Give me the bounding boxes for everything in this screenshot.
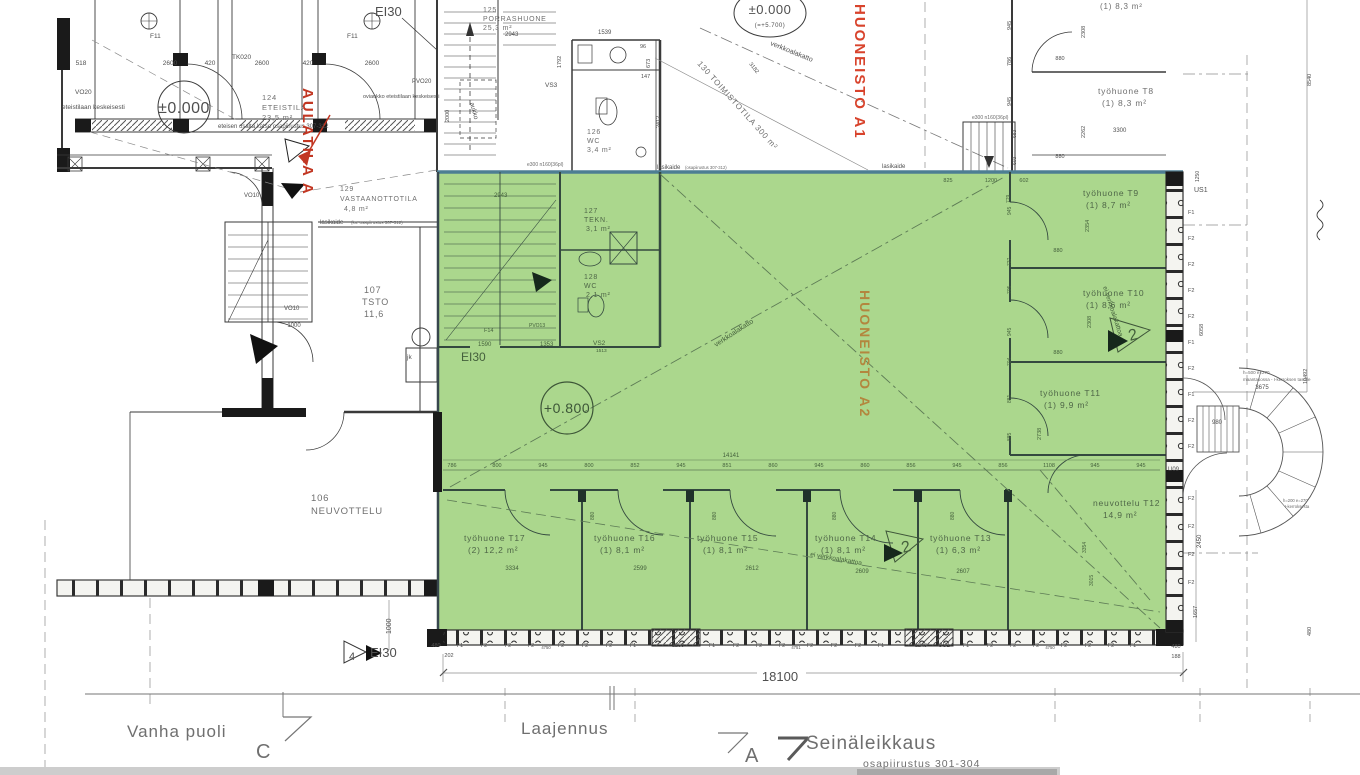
room-t8-name: työhuone T8 <box>1098 86 1154 96</box>
dim-945-a: 945 <box>1007 21 1013 30</box>
win-b-24: F1 <box>1130 643 1136 649</box>
dim-880-a: 880 <box>1055 56 1064 62</box>
dim-2354: 2354 <box>1085 220 1091 232</box>
dim-row-14: 1108 <box>1043 463 1055 469</box>
win-b-6: F2 <box>582 643 588 649</box>
label-u09: U09 <box>1168 467 1180 473</box>
room-t11-area: (1) 9,9 m² <box>1044 400 1089 410</box>
room-124-area: 23,5 m² <box>262 113 293 122</box>
label-f11-left: F11 <box>150 33 161 40</box>
room-126-area: 3,4 m² <box>587 147 612 154</box>
dim-518: 518 <box>76 60 87 67</box>
dim-2000: 2000 <box>445 110 451 122</box>
dim-2943-a: 2943 <box>505 32 519 38</box>
dim-727: 727 <box>1007 257 1013 266</box>
dim-786-a: 786 <box>1007 57 1013 66</box>
dim-2412: 2412 <box>656 116 662 128</box>
level-a1: ±0.000 <box>749 2 792 17</box>
dim-945-d: 945 <box>1007 327 1013 336</box>
win-b-7: F2 <box>606 643 612 649</box>
dim-683: 683 <box>1012 129 1018 138</box>
room-t11-name: työhuone T11 <box>1040 388 1101 398</box>
label-huoneisto-a2: HUONEISTO A2 <box>857 290 873 418</box>
win-b-8: F1 <box>630 643 636 649</box>
room-106-name: NEUVOTTELU <box>311 506 383 517</box>
floor-plan-drawing: EI30F11F11TK020518260042026004202600VO20… <box>0 0 1360 775</box>
win-r-8: F1 <box>1188 392 1194 398</box>
room-127-area: 3,1 m² <box>586 226 611 233</box>
label-pvo20: PVO20 <box>412 79 432 85</box>
dim-2308-b: 2308 <box>1087 316 1093 328</box>
room-t16-name: työhuone T16 <box>594 533 655 543</box>
win-b-14: F2 <box>831 643 837 649</box>
room-t10-name: työhuone T10 <box>1083 288 1144 298</box>
dim-2943-b: 2943 <box>494 193 508 199</box>
room-126-name: WC <box>587 138 600 145</box>
win-b-480l: 480 <box>431 643 440 649</box>
label-aulatila-a: AULATILA A <box>299 88 316 196</box>
room-t9-area: (1) 8,7 m² <box>1086 200 1131 210</box>
dim-603: 603 <box>1012 156 1018 165</box>
dim-1657: 1657 <box>1193 606 1199 618</box>
win-b-4751: 4751 <box>791 645 801 650</box>
room-125-area: 25,3 m² <box>483 25 512 32</box>
dim-2308-a: 2308 <box>1081 26 1087 38</box>
win-r-4: F2 <box>1188 288 1194 294</box>
room-106-num: 106 <box>311 493 329 504</box>
dim-2612: 2612 <box>745 566 759 572</box>
room-125-name: PORRASHUONE <box>483 16 547 23</box>
floor-plan-page: EI30F11F11TK020518260042026004202600VO20… <box>0 0 1360 775</box>
label-ei30-green: EI30 <box>461 350 486 364</box>
win-r-11: F2 <box>1188 496 1194 502</box>
win-b-11: F2 <box>756 643 762 649</box>
win-b-4: F2 <box>528 643 534 649</box>
dim-147: 147 <box>641 74 650 80</box>
room-t13-name: työhuone T13 <box>930 533 991 543</box>
dim-row-3: 945 <box>538 463 547 469</box>
dim-2607: 2607 <box>956 569 970 575</box>
dim-880-p3: 880 <box>832 511 838 520</box>
footer-osapiirustus: osapiirustus 301-304 <box>863 758 980 770</box>
win-b-19: F2 <box>1010 643 1016 649</box>
dim-1250-right: 1250 <box>1195 171 1201 182</box>
dim-2600-b: 2600 <box>255 60 270 67</box>
dim-row-12: 945 <box>952 463 961 469</box>
win-b-18: F2 <box>987 643 993 649</box>
label-ei30-top: EI30 <box>375 4 402 19</box>
dim-3354: 3354 <box>1082 542 1088 553</box>
room-t14-name: työhuone T14 <box>815 533 876 543</box>
dim-1792: 1792 <box>557 56 563 68</box>
room-t15-name: työhuone T15 <box>697 533 758 543</box>
note-kierreporras-2: I-kerroksesta <box>1285 504 1310 509</box>
room-t12-name: neuvottelu T12 <box>1093 498 1160 508</box>
dim-3334: 3334 <box>505 566 519 572</box>
label-ei30-bottom: EI30 <box>370 645 397 660</box>
win-b-10: F2 <box>733 643 739 649</box>
room-127-name: TEKN. <box>584 217 609 224</box>
dim-2599: 2599 <box>633 566 647 572</box>
win-b-13: F2 <box>807 643 813 649</box>
win-r-1: F1 <box>1188 210 1194 216</box>
dim-705: 705 <box>1007 285 1013 294</box>
dim-880-b: 880 <box>1055 154 1064 160</box>
note-ulkoporras-1: h=500 e=270 <box>1243 370 1270 375</box>
dim-row-11: 856 <box>906 463 915 469</box>
room-107-num: 107 <box>364 285 381 295</box>
note-stair-b: e300 n160(36pl) <box>972 115 1009 121</box>
label-jk: jk <box>406 354 412 361</box>
label-huoneisto-a1: HUONEISTO A1 <box>851 4 868 140</box>
dim-row-10: 860 <box>860 463 869 469</box>
room-t16-area: (1) 8,1 m² <box>600 545 645 555</box>
footer-vanha-puoli: Vanha puoli <box>127 722 227 741</box>
dim-480-r: 480 <box>1171 644 1180 650</box>
room-129-num: 129 <box>340 186 354 193</box>
dim-1000-a: 1000 <box>287 323 301 329</box>
win-b-5: F2 <box>558 643 564 649</box>
dim-row-13: 856 <box>998 463 1007 469</box>
dim-3675: 3675 <box>1255 385 1269 391</box>
dim-18100: 18100 <box>762 669 798 684</box>
dim-1539: 1539 <box>598 30 612 36</box>
win-b-9: F1 <box>709 643 715 649</box>
dim-704: 704 <box>1007 357 1013 366</box>
label-lasikaide-mid: lasikaide <box>657 165 681 171</box>
room-125-num: 125 <box>483 7 497 14</box>
dim-885: 885 <box>1007 432 1013 441</box>
note-oviaukko: oviaukko eteistilaan keskeisesti <box>363 94 439 100</box>
dim-1200: 1200 <box>985 178 997 184</box>
ventilation-dots-row <box>443 632 1158 643</box>
room-t13-area: (1) 6,3 m² <box>936 545 981 555</box>
level-0800: +0.800 <box>544 400 590 416</box>
dim-880-d: 880 <box>1053 350 1062 356</box>
room-107-area: 11,6 <box>364 309 384 319</box>
dim-420-b: 420 <box>303 60 314 67</box>
note-eteistilaan: eteistilaan keskeisesti <box>62 104 125 111</box>
level-entrance: ±0.000 <box>158 100 210 117</box>
dim-row-16: 945 <box>1136 463 1145 469</box>
level-a1-rel: (=+5.700) <box>755 23 786 29</box>
room-129-area: 4,8 m² <box>344 206 369 213</box>
footer-seinaleikkaus: Seinäleikkaus <box>806 733 936 754</box>
dim-779: 779 <box>1006 194 1012 203</box>
dim-880-p4: 880 <box>950 511 956 520</box>
dim-202: 202 <box>444 653 453 659</box>
room-129-name: VASTAANOTTOTILA <box>340 196 418 203</box>
win-r-2: F2 <box>1188 236 1194 242</box>
label-tk020: TK020 <box>232 54 252 61</box>
dim-420-a: 420 <box>205 60 216 67</box>
win-r-3: F2 <box>1188 262 1194 268</box>
dim-8540: 8540 <box>1307 74 1313 86</box>
note-stair-a: e300 n160(36pl) <box>527 162 564 168</box>
dim-980: 980 <box>1212 420 1223 426</box>
win-r-13: F2 <box>1188 552 1194 558</box>
label-f14: F14 <box>484 328 493 334</box>
dim-2600-a: 2600 <box>163 60 178 67</box>
room-128-name: WC <box>584 283 597 290</box>
dim-row-4: 800 <box>584 463 593 469</box>
note-ulkoporras-2: maantasossa - I-kerroksen tasolle <box>1243 377 1311 382</box>
note-kierreporras-1: h=200 e=270 <box>1283 498 1308 503</box>
win-b-3: F2 <box>505 643 511 649</box>
win-b-23: F2 <box>1108 643 1114 649</box>
dim-2738: 2738 <box>1037 428 1043 440</box>
label-vs2: VS2 <box>593 340 606 347</box>
room-126-num: 126 <box>587 129 601 136</box>
label-f11-right: F11 <box>347 33 358 40</box>
room-t9-name: työhuone T9 <box>1083 188 1139 198</box>
dim-1353: 1353 <box>540 342 554 348</box>
win-b-12: F2 <box>779 643 785 649</box>
dim-880-p2: 880 <box>712 511 718 520</box>
win-b-us1: US1 <box>938 643 950 649</box>
win-b-1250: 1250 <box>672 643 684 649</box>
dim-1590: 1590 <box>478 342 492 348</box>
room-t7-area: (1) 8,3 m² <box>1100 2 1143 11</box>
dim-row-2: 800 <box>492 463 501 469</box>
win-b-22: F2 <box>1085 643 1091 649</box>
dim-row-7: 851 <box>722 463 731 469</box>
dim-3300: 3300 <box>1113 128 1127 134</box>
label-lasikaide-old: lasikaide <box>320 220 344 226</box>
dim-row-5: 852 <box>630 463 639 469</box>
dim-881: 881 <box>1007 394 1013 403</box>
note-lasikaide-mid: (osapiirustus 307-312) <box>685 165 727 170</box>
dim-480-rr: 480 <box>1307 627 1313 636</box>
dim-96: 96 <box>640 44 646 50</box>
label-vo20: VO20 <box>75 89 92 96</box>
room-127-num: 127 <box>584 208 598 215</box>
label-vs3: VS3 <box>545 82 558 89</box>
dim-row-1: 786 <box>447 463 456 469</box>
footer-laajennus: Laajennus <box>521 719 608 738</box>
dim-188-r: 188 <box>1171 654 1180 660</box>
label-pvo13: PVO13 <box>529 323 545 329</box>
dim-row-9: 945 <box>814 463 823 469</box>
win-b-1249: 1249 <box>915 643 927 649</box>
room-107-name: TSTO <box>362 297 389 307</box>
win-b-15: F2 <box>855 643 861 649</box>
win-b-20: F2 <box>1033 643 1039 649</box>
dim-880-c: 880 <box>1053 248 1062 254</box>
win-b-4750b: 4750 <box>1045 645 1055 650</box>
room-t12-area: 14,9 m² <box>1103 510 1137 520</box>
room-128-area: 2,1 m² <box>586 292 611 299</box>
win-r-10: F2 <box>1188 444 1194 450</box>
dim-880-p1: 880 <box>590 511 596 520</box>
dim-1000-b: 1000 <box>386 618 393 634</box>
room-t8-area: (1) 8,3 m² <box>1102 98 1147 108</box>
win-b-2: F2 <box>481 643 487 649</box>
marker-4: 4 <box>349 651 355 663</box>
dim-945-b: 945 <box>1007 97 1013 106</box>
win-b-17: F1 <box>963 643 969 649</box>
win-r-7: F2 <box>1188 366 1194 372</box>
footer-marker-a: A <box>745 745 759 767</box>
dim-3015: 3015 <box>1089 575 1095 586</box>
label-vo10-b: VO10 <box>284 306 300 312</box>
dim-row-15: 945 <box>1090 463 1099 469</box>
win-r-9: F2 <box>1188 418 1194 424</box>
win-b-21: F2 <box>1061 643 1067 649</box>
dim-2262: 2262 <box>1081 126 1087 138</box>
dim-2609: 2609 <box>855 569 869 575</box>
win-r-5: F2 <box>1188 314 1194 320</box>
room-128-num: 128 <box>584 274 598 281</box>
dim-14141: 14141 <box>723 453 740 459</box>
win-b-1: F1 <box>457 643 463 649</box>
dim-6058: 6058 <box>1199 324 1205 336</box>
dim-row-8: 860 <box>768 463 777 469</box>
dim-673: 673 <box>646 59 652 68</box>
dim-945-c: 945 <box>1007 206 1013 215</box>
note-lasikaide-old: (ks. osapiirustus 307-312) <box>351 220 403 225</box>
dim-2450: 2450 <box>1197 534 1203 548</box>
label-us1-top: US1 <box>1194 187 1208 194</box>
dim-1513: 1513 <box>596 348 607 354</box>
dim-602: 602 <box>1019 178 1028 184</box>
label-lasikaide-right: lasikaide <box>882 164 906 170</box>
win-r-14: F2 <box>1188 580 1194 586</box>
win-r-12: F2 <box>1188 524 1194 530</box>
dim-2600-c: 2600 <box>365 60 380 67</box>
win-r-6: F1 <box>1188 340 1194 346</box>
room-t17-area: (2) 12,2 m² <box>468 545 518 555</box>
room-t15-area: (1) 8,1 m² <box>703 545 748 555</box>
dim-825: 825 <box>943 178 952 184</box>
win-b-16: F1 <box>878 643 884 649</box>
room-124-num: 124 <box>262 93 277 102</box>
label-vo10-a: VO10 <box>244 193 260 199</box>
win-b-4750a: 4750 <box>541 645 551 650</box>
room-t17-name: työhuone T17 <box>464 533 525 543</box>
dim-row-6: 945 <box>676 463 685 469</box>
footer-marker-c: C <box>256 741 271 763</box>
